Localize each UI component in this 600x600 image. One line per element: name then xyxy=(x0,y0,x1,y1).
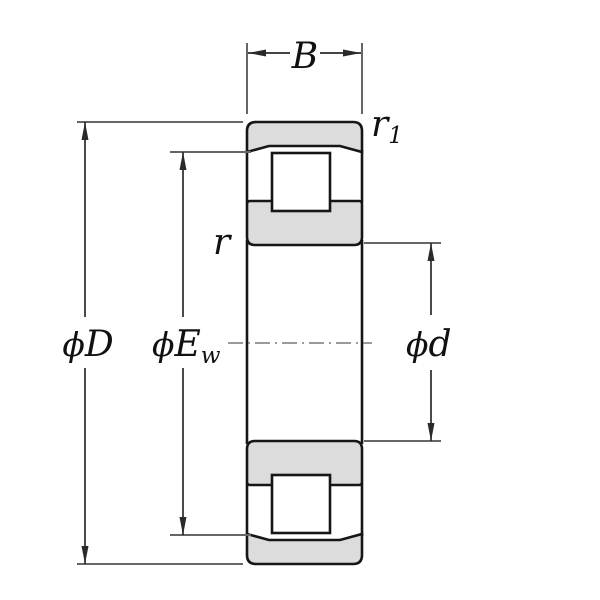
roller-bottom xyxy=(272,475,330,533)
outer-ring-top-section xyxy=(247,122,362,152)
label-outer-ring-chamfer-r1: r1 xyxy=(371,104,403,149)
arrowhead-up xyxy=(428,243,435,261)
bearing-lower-section xyxy=(247,441,362,564)
roller-top xyxy=(272,153,330,211)
arrowhead-down xyxy=(428,423,435,441)
label-width-B: B xyxy=(291,36,318,77)
arrowhead-up xyxy=(82,122,89,140)
label-inner-ring-chamfer-r: r xyxy=(213,222,232,263)
arrowhead-down xyxy=(82,546,89,564)
bearing-cross-section-diagram: B ϕD ϕEw ϕd r xyxy=(0,0,600,600)
outer-ring-bottom-section xyxy=(247,534,362,564)
dimension-bore-diameter: ϕd xyxy=(364,243,452,441)
label-outer-diameter: ϕD xyxy=(62,324,114,365)
arrowhead-down xyxy=(180,517,187,535)
dimension-width-B: B xyxy=(247,36,362,114)
arrowhead-up xyxy=(180,152,187,170)
label-raceway-diameter: ϕEw xyxy=(152,324,221,369)
label-bore-diameter: ϕd xyxy=(406,324,452,365)
arrowhead-right xyxy=(343,50,361,57)
arrowhead-left xyxy=(248,50,266,57)
bearing-upper-section xyxy=(247,122,362,245)
